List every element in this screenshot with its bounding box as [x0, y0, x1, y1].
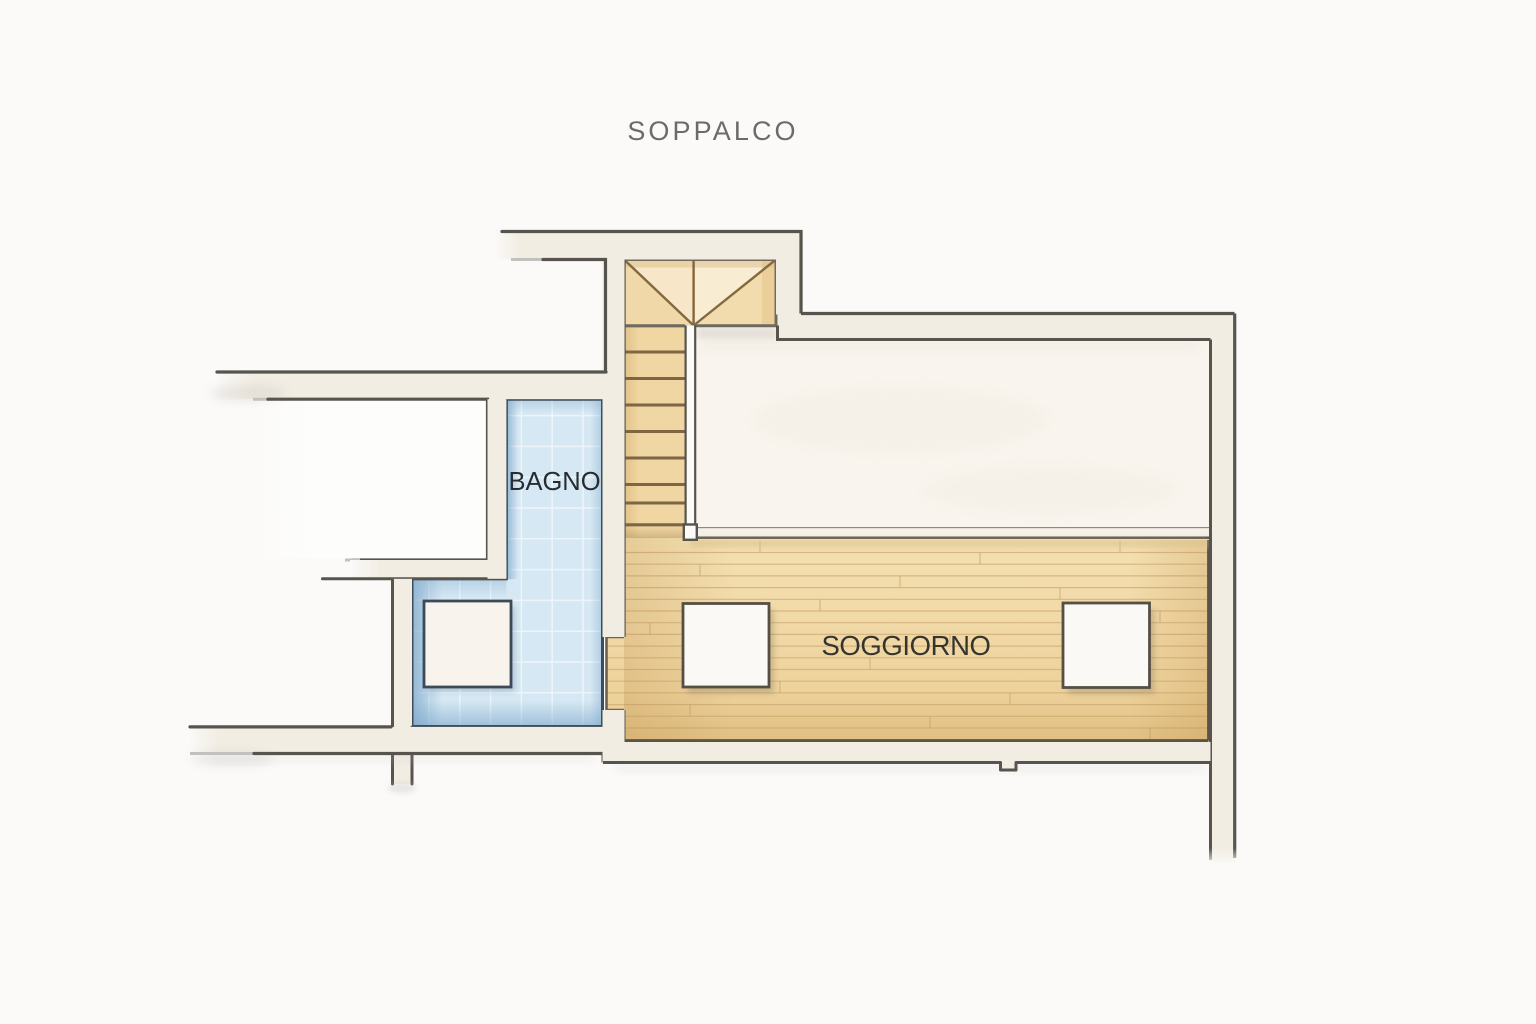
svg-text:BAGNO: BAGNO [508, 468, 600, 496]
svg-text:SOPPALCO: SOPPALCO [627, 116, 798, 146]
svg-text:SOGGIORNO: SOGGIORNO [821, 630, 990, 661]
